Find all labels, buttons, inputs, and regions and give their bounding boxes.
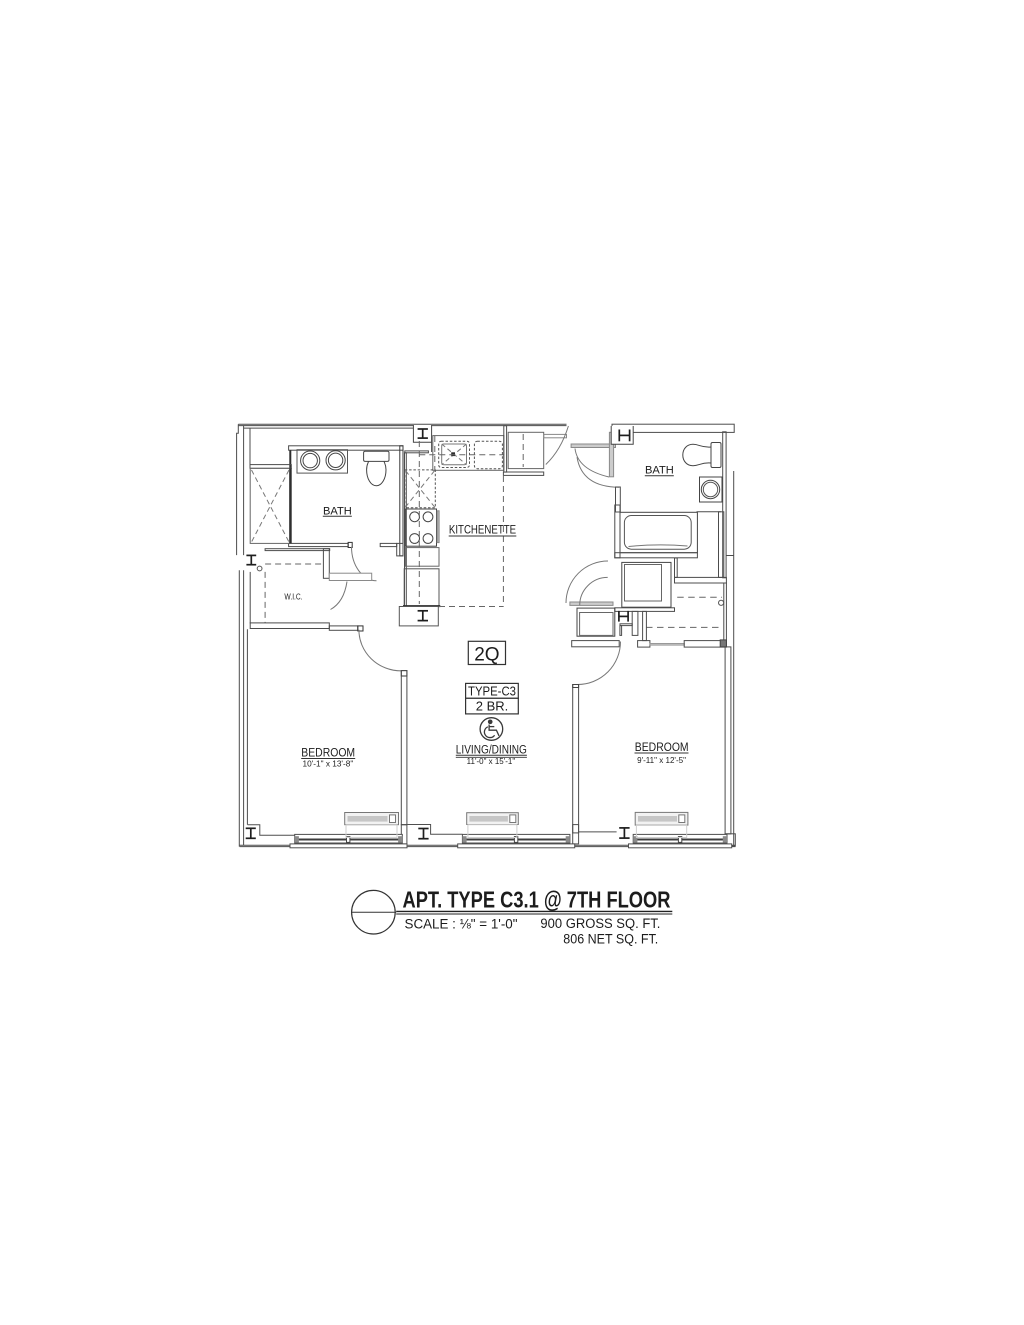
- svg-text:BATH: BATH: [323, 505, 352, 517]
- svg-text:11'-0" x 15'-1": 11'-0" x 15'-1": [467, 757, 516, 766]
- svg-text:2Q: 2Q: [474, 644, 499, 665]
- svg-text:SCALE : ⅛" = 1'-0": SCALE : ⅛" = 1'-0": [405, 917, 518, 932]
- svg-text:LIVING/DINING: LIVING/DINING: [456, 745, 527, 757]
- svg-text:KITCHENETTE: KITCHENETTE: [449, 523, 516, 537]
- svg-text:900 GROSS SQ. FT.: 900 GROSS SQ. FT.: [540, 916, 660, 931]
- svg-text:TYPE-C3: TYPE-C3: [468, 683, 516, 698]
- svg-text:9'-11" x 12'-5": 9'-11" x 12'-5": [637, 756, 686, 765]
- svg-text:BEDROOM: BEDROOM: [635, 742, 689, 754]
- svg-text:W.I.C.: W.I.C.: [284, 592, 302, 602]
- svg-text:10'-1" x 13'-8": 10'-1" x 13'-8": [303, 760, 354, 769]
- svg-text:806 NET SQ. FT.: 806 NET SQ. FT.: [563, 932, 658, 947]
- svg-text:APT. TYPE C3.1 @ 7TH FLOOR: APT. TYPE C3.1 @ 7TH FLOOR: [403, 887, 671, 913]
- svg-text:2 BR.: 2 BR.: [476, 699, 509, 714]
- svg-text:BATH: BATH: [645, 465, 674, 477]
- svg-text:BEDROOM: BEDROOM: [301, 747, 355, 759]
